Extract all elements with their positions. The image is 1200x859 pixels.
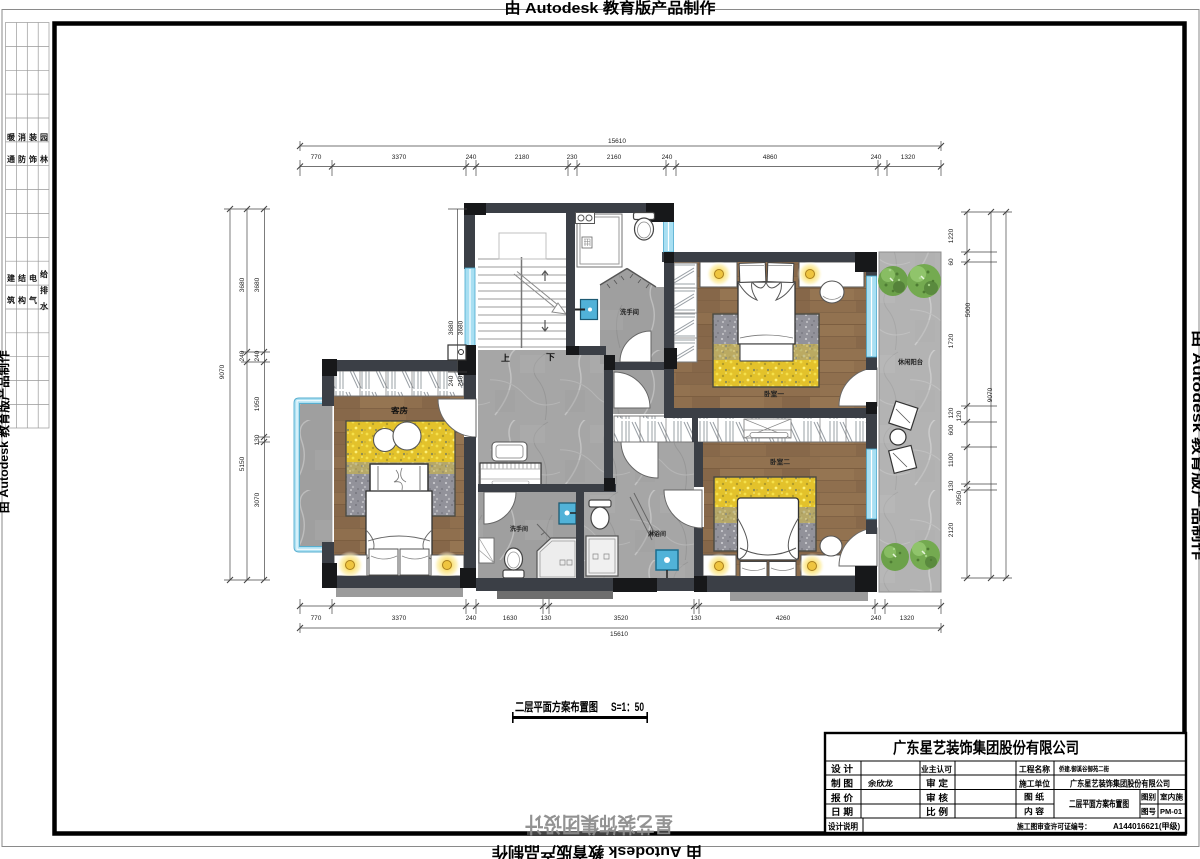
svg-text:3680: 3680 <box>458 320 465 335</box>
svg-text:通: 通 <box>7 154 15 164</box>
svg-text:园: 园 <box>40 133 48 142</box>
svg-text:筑: 筑 <box>7 295 15 305</box>
svg-text:饰: 饰 <box>29 154 37 164</box>
svg-text:240: 240 <box>871 615 882 622</box>
svg-text:1720: 1720 <box>948 333 955 348</box>
svg-text:报 价: 报 价 <box>831 792 854 803</box>
svg-text:3070: 3070 <box>254 492 261 507</box>
svg-text:二层平面方案布置图: 二层平面方案布置图 <box>515 699 598 714</box>
svg-text:淋浴间: 淋浴间 <box>648 530 666 538</box>
svg-text:130: 130 <box>254 434 261 445</box>
svg-text:日 期: 日 期 <box>831 806 853 817</box>
svg-text:240: 240 <box>466 615 477 622</box>
svg-text:1220: 1220 <box>948 228 955 243</box>
svg-text:结: 结 <box>18 273 26 283</box>
svg-text:施工单位: 施工单位 <box>1019 779 1050 789</box>
svg-text:室内施: 室内施 <box>1160 792 1184 802</box>
svg-text:3370: 3370 <box>392 615 407 622</box>
svg-text:240: 240 <box>662 154 673 161</box>
svg-text:120: 120 <box>956 410 963 421</box>
svg-text:设 计: 设 计 <box>831 763 853 774</box>
svg-text:PM-01: PM-01 <box>1160 807 1182 816</box>
svg-text:1320: 1320 <box>901 154 916 161</box>
svg-text:240: 240 <box>466 154 477 161</box>
svg-text:230: 230 <box>567 154 578 161</box>
svg-text:770: 770 <box>311 615 322 622</box>
svg-text:装: 装 <box>28 132 37 142</box>
svg-text:5000: 5000 <box>965 302 972 317</box>
svg-text:770: 770 <box>311 154 322 161</box>
svg-text:比 例: 比 例 <box>926 806 948 817</box>
svg-text:林: 林 <box>40 154 48 164</box>
svg-text:设计说明: 设计说明 <box>828 822 858 832</box>
svg-text:2180: 2180 <box>515 154 530 161</box>
svg-text:130: 130 <box>948 480 955 491</box>
svg-text:1950: 1950 <box>254 396 261 411</box>
svg-text:气: 气 <box>28 295 37 305</box>
svg-text:由 Autodesk 教育版产品制作: 由 Autodesk 教育版产品制作 <box>0 351 11 514</box>
svg-text:下: 下 <box>546 352 556 362</box>
svg-text:业主认可: 业主认可 <box>921 764 952 774</box>
svg-text:侨建.御溪谷御苑二街: 侨建.御溪谷御苑二街 <box>1058 764 1109 773</box>
svg-text:由 Autodesk 教育版产品制作: 由 Autodesk 教育版产品制作 <box>505 0 716 17</box>
svg-text:3680: 3680 <box>448 320 455 335</box>
svg-text:卧室一: 卧室一 <box>764 389 785 398</box>
svg-text:广东星艺装饰集团股份有限公司: 广东星艺装饰集团股份有限公司 <box>893 738 1079 757</box>
svg-text:4260: 4260 <box>776 615 791 622</box>
svg-text:1100: 1100 <box>948 453 955 467</box>
svg-text:600: 600 <box>948 424 955 435</box>
svg-text:审 核: 审 核 <box>926 792 948 803</box>
svg-text:由 Autodesk 教育版产品制作: 由 Autodesk 教育版产品制作 <box>492 843 702 859</box>
svg-text:S=1：50: S=1：50 <box>611 702 644 714</box>
svg-text:制 图: 制 图 <box>831 778 853 789</box>
svg-text:防: 防 <box>18 154 26 164</box>
svg-text:由 Autodesk 教育版产品制作: 由 Autodesk 教育版产品制作 <box>1190 330 1200 560</box>
svg-text:二层平面方案布置图: 二层平面方案布置图 <box>1069 798 1129 809</box>
svg-text:240: 240 <box>871 154 882 161</box>
svg-text:施工图审查许可证编号：: 施工图审查许可证编号： <box>1017 821 1091 831</box>
svg-text:120: 120 <box>948 407 955 418</box>
svg-text:水: 水 <box>39 301 49 311</box>
svg-text:240: 240 <box>458 375 465 386</box>
svg-text:3950: 3950 <box>956 490 963 505</box>
svg-text:3370: 3370 <box>392 154 407 161</box>
svg-text:洗手间: 洗手间 <box>510 525 528 533</box>
svg-text:卧室二: 卧室二 <box>770 457 791 466</box>
svg-text:工程名称: 工程名称 <box>1019 764 1050 774</box>
svg-text:3520: 3520 <box>614 615 629 622</box>
svg-text:洗手间: 洗手间 <box>620 307 639 316</box>
svg-text:审 定: 审 定 <box>926 778 949 789</box>
svg-text:9070: 9070 <box>219 364 226 379</box>
svg-text:240: 240 <box>254 350 261 361</box>
svg-text:240: 240 <box>448 375 455 386</box>
svg-text:1630: 1630 <box>503 615 518 622</box>
svg-text:客房: 客房 <box>390 405 409 415</box>
svg-text:3680: 3680 <box>239 277 246 292</box>
svg-text:排: 排 <box>40 285 48 295</box>
svg-text:上: 上 <box>501 353 511 363</box>
svg-text:15610: 15610 <box>608 138 626 145</box>
svg-text:广东星艺装饰集团股份有限公司: 广东星艺装饰集团股份有限公司 <box>1070 779 1170 789</box>
svg-text:240: 240 <box>239 350 246 361</box>
svg-text:1320: 1320 <box>900 615 915 622</box>
svg-text:构: 构 <box>18 295 26 305</box>
svg-text:图别: 图别 <box>1141 793 1156 802</box>
svg-text:内 容: 内 容 <box>1024 806 1044 816</box>
svg-text:休闲阳台: 休闲阳台 <box>897 357 923 366</box>
svg-text:15610: 15610 <box>610 631 628 638</box>
svg-text:2160: 2160 <box>607 154 622 161</box>
svg-text:图号: 图号 <box>1141 807 1157 816</box>
svg-text:3680: 3680 <box>254 277 261 292</box>
svg-text:暖: 暖 <box>7 132 16 142</box>
svg-text:图 纸: 图 纸 <box>1024 792 1044 802</box>
svg-text:消: 消 <box>18 132 26 142</box>
svg-text:130: 130 <box>691 615 702 622</box>
svg-text:60: 60 <box>948 258 955 266</box>
svg-text:建: 建 <box>6 273 16 283</box>
svg-text:2120: 2120 <box>948 522 955 537</box>
svg-text:4860: 4860 <box>763 154 778 161</box>
svg-text:130: 130 <box>541 615 552 622</box>
svg-text:电: 电 <box>29 273 37 283</box>
svg-text:A144016621(甲级): A144016621(甲级) <box>1113 821 1180 831</box>
svg-text:5150: 5150 <box>239 456 246 471</box>
svg-text:9070: 9070 <box>987 387 994 402</box>
svg-text:余欣龙: 余欣龙 <box>867 778 894 788</box>
svg-text:给: 给 <box>40 269 48 279</box>
